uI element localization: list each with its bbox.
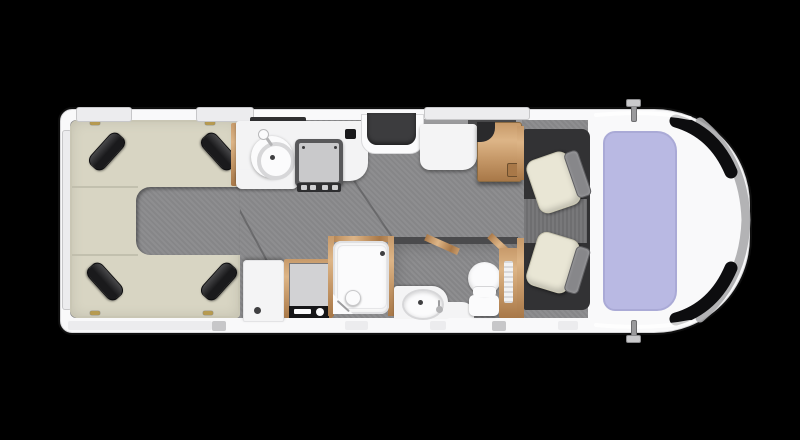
bottom-wall-tab (345, 321, 368, 330)
bottom-wall-tab (212, 321, 226, 331)
bottom-wall-tab (492, 321, 506, 331)
floorplan-canvas (0, 0, 800, 440)
bottom-window-frame (68, 321, 212, 330)
cab-front-curves (0, 0, 800, 440)
bottom-wall-tab (558, 321, 578, 330)
bottom-wall-tab (430, 321, 446, 330)
side-mirror (626, 335, 641, 343)
side-mirror (626, 99, 641, 107)
